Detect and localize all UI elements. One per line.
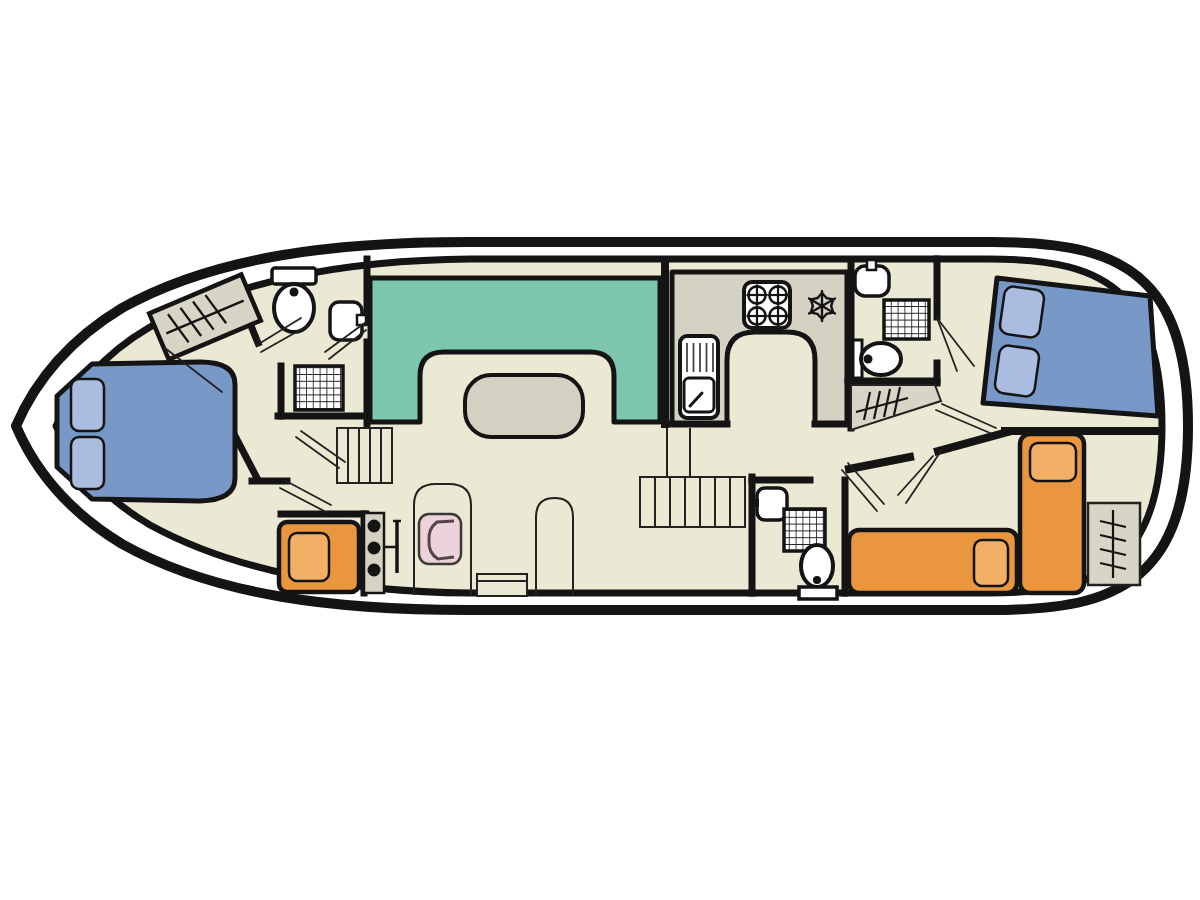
saloon-table (465, 375, 583, 437)
aft-wardrobe (1088, 503, 1140, 585)
bed-pillow (994, 344, 1040, 397)
forward-stairs (337, 428, 392, 483)
bow-bed-pillow (71, 379, 104, 431)
washbasin-icon (751, 488, 787, 520)
shower-icon (295, 366, 343, 410)
shower-icon (884, 300, 929, 339)
bed-pillow (289, 533, 329, 581)
galley-sink (680, 336, 718, 418)
step-locker (477, 574, 527, 596)
deck-plan-canvas (0, 0, 1200, 900)
washbasin-icon (855, 260, 889, 296)
console-knob (368, 564, 381, 577)
console-knob (368, 542, 381, 555)
bed-pillow (1030, 443, 1076, 481)
bed-pillow (974, 540, 1008, 586)
toilet-icon (853, 340, 901, 378)
bow-cabin (57, 274, 261, 501)
aft-double-cabin (983, 278, 1158, 416)
bed-pillow (999, 285, 1045, 338)
houseboat-floor-plan (0, 0, 1200, 900)
forward-single-cabin (279, 522, 359, 592)
bow-bed-pillow (71, 437, 104, 489)
console-knob (368, 520, 381, 533)
stove-icon (744, 282, 790, 328)
toilet-icon (799, 545, 837, 599)
